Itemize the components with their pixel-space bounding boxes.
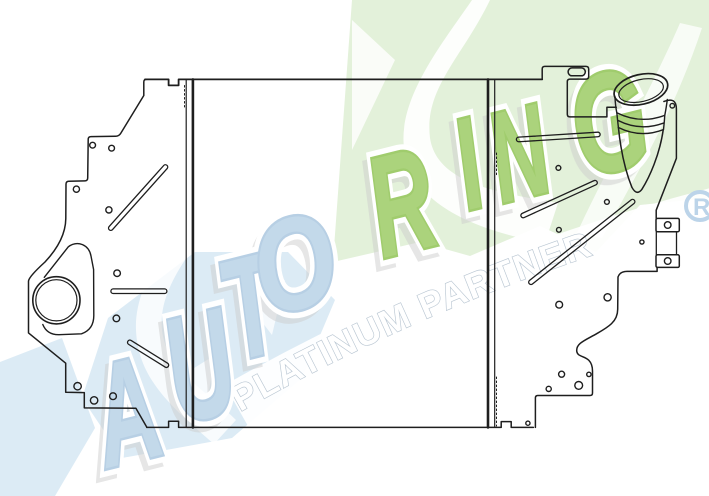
svg-text:R: R (693, 194, 709, 221)
